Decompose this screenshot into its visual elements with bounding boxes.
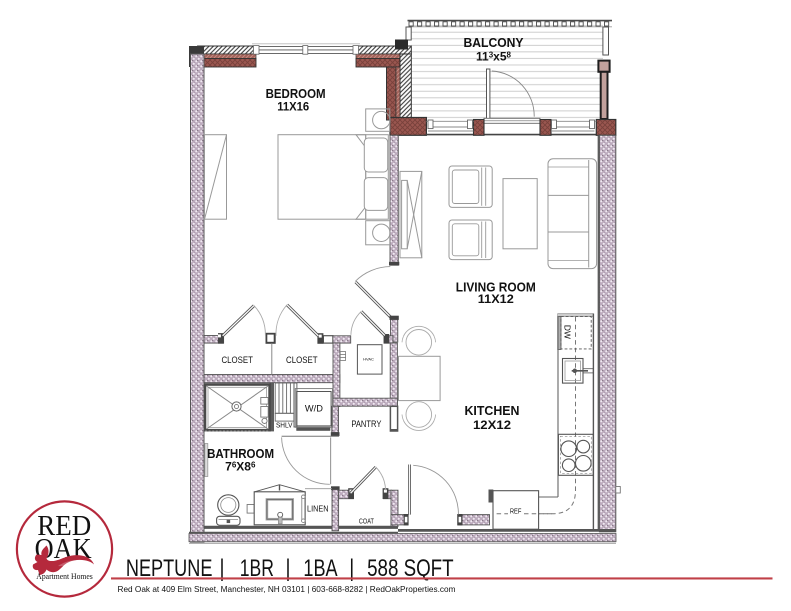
svg-text:HVAC: HVAC: [363, 357, 374, 362]
svg-text:W/D: W/D: [305, 403, 323, 414]
svg-text:113x58: 113x58: [476, 50, 512, 64]
svg-text:Red Oak at 409 Elm Street, Man: Red Oak at 409 Elm Street, Manchester, N…: [118, 584, 456, 594]
svg-text:SHLV: SHLV: [276, 422, 293, 429]
svg-text:KITCHEN: KITCHEN: [465, 403, 520, 418]
svg-text:12X12: 12X12: [473, 418, 511, 432]
svg-text:DW: DW: [563, 325, 573, 339]
svg-text:11X12: 11X12: [478, 292, 514, 306]
svg-text:CLOSET: CLOSET: [286, 355, 318, 366]
svg-text:COAT: COAT: [359, 518, 375, 525]
svg-text:REF: REF: [510, 509, 522, 516]
svg-text:PANTRY: PANTRY: [351, 419, 382, 430]
svg-text:CLOSET: CLOSET: [221, 355, 253, 366]
svg-text:11X16: 11X16: [277, 100, 309, 114]
svg-text:LINEN: LINEN: [307, 504, 329, 514]
svg-text:BALCONY: BALCONY: [464, 35, 524, 50]
svg-text:Apartment Homes: Apartment Homes: [36, 571, 93, 581]
